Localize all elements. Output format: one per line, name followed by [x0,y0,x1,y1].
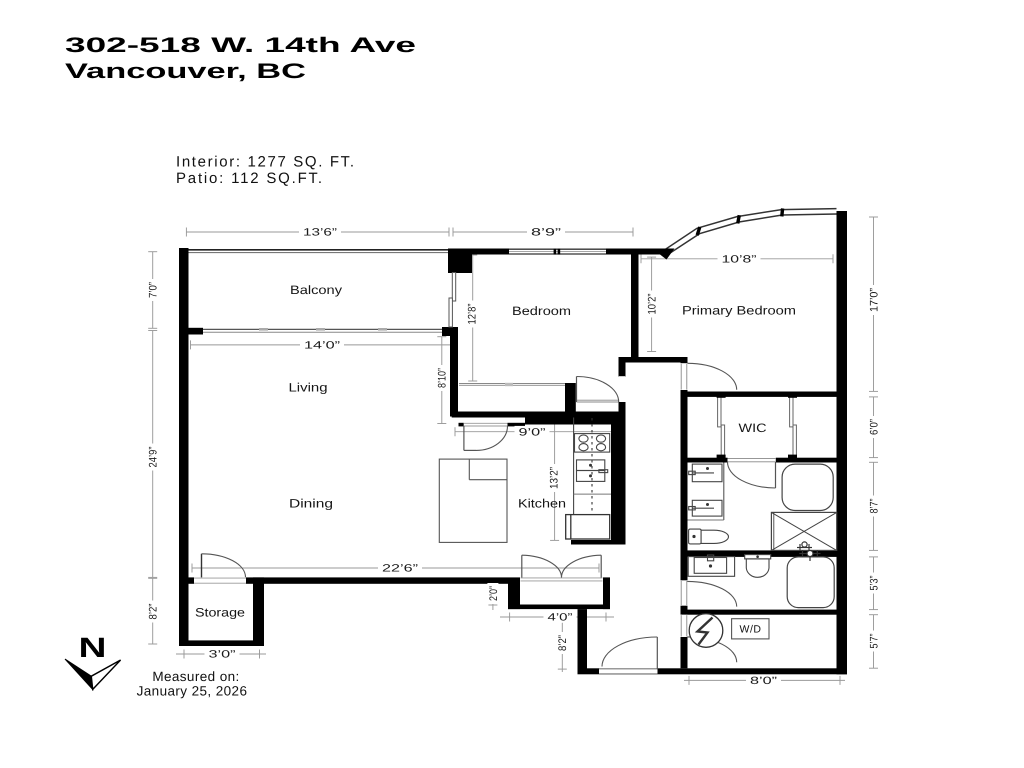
svg-text:Measured on:: Measured on: [152,669,239,684]
svg-text:5’7”: 5’7” [868,633,880,648]
svg-text:N: N [79,632,107,663]
svg-text:January 25, 2026: January 25, 2026 [137,684,248,699]
svg-text:Storage: Storage [195,606,245,620]
svg-text:Interior: 1277 SQ. FT.: Interior: 1277 SQ. FT. [176,154,354,171]
svg-text:9’0”: 9’0” [519,426,547,438]
svg-text:2’0”: 2’0” [488,586,500,601]
svg-text:14’0”: 14’0” [304,340,341,352]
svg-text:Kitchen: Kitchen [518,497,566,511]
svg-text:Bedroom: Bedroom [512,304,571,318]
svg-text:Living: Living [289,381,328,395]
svg-text:8’0”: 8’0” [750,675,778,687]
svg-text:6’0”: 6’0” [868,419,880,435]
svg-text:24’9”: 24’9” [148,446,160,467]
svg-text:302-518 W. 14th Ave: 302-518 W. 14th Ave [65,34,416,57]
svg-text:WIC: WIC [739,421,767,435]
svg-text:W/D: W/D [740,624,762,636]
svg-text:3’0”: 3’0” [209,649,237,661]
svg-text:Vancouver, BC: Vancouver, BC [65,60,306,83]
svg-text:8’2”: 8’2” [557,635,569,651]
svg-text:12’8”: 12’8” [466,303,478,324]
svg-text:13’6”: 13’6” [303,227,338,239]
svg-text:5’3”: 5’3” [868,575,880,590]
svg-text:Primary Bedroom: Primary Bedroom [682,304,796,318]
svg-text:8’10”: 8’10” [437,368,449,388]
svg-text:13’2”: 13’2” [548,467,560,489]
svg-text:10’8”: 10’8” [722,253,758,265]
svg-text:Dining: Dining [289,497,333,511]
svg-text:10’2”: 10’2” [647,293,659,314]
svg-text:8’7”: 8’7” [868,498,880,513]
svg-text:8’9”: 8’9” [531,227,562,239]
svg-text:22’6”: 22’6” [382,563,419,575]
svg-text:17’0”: 17’0” [868,288,880,312]
svg-text:Balcony: Balcony [290,283,343,297]
svg-text:7’0”: 7’0” [148,282,160,298]
svg-text:4’0”: 4’0” [548,612,574,624]
svg-text:8’2”: 8’2” [148,603,160,619]
